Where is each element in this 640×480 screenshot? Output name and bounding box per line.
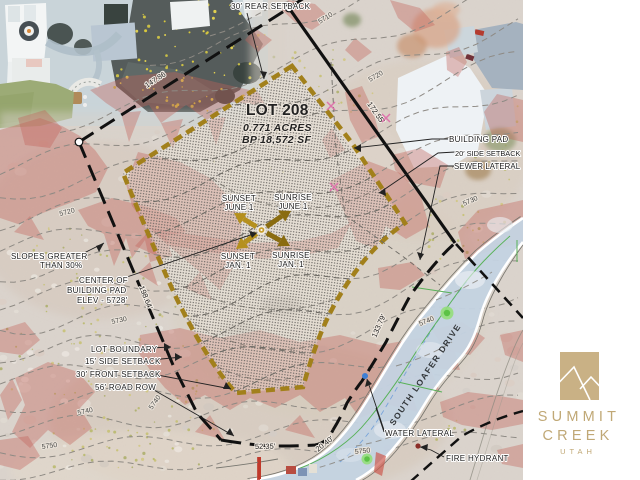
svg-text:CREEK: CREEK <box>543 428 614 444</box>
svg-text:56′ ROAD ROW: 56′ ROAD ROW <box>95 383 156 392</box>
svg-text:SUNRISE: SUNRISE <box>272 251 310 260</box>
svg-text:SEWER LATERAL: SEWER LATERAL <box>454 162 521 171</box>
svg-text:SUMMIT: SUMMIT <box>538 409 620 425</box>
svg-text:BP 18,572 SF: BP 18,572 SF <box>242 134 311 146</box>
svg-text:SUNRISE: SUNRISE <box>274 193 312 202</box>
svg-text:JUNE 1: JUNE 1 <box>278 202 308 211</box>
svg-text:LOT 208: LOT 208 <box>246 102 309 119</box>
svg-text:JAN. 1: JAN. 1 <box>225 261 251 270</box>
svg-text:SUNSET: SUNSET <box>222 194 256 203</box>
svg-text:20′ SIDE SETBACK: 20′ SIDE SETBACK <box>455 149 521 158</box>
svg-text:CENTER OF: CENTER OF <box>79 276 128 285</box>
svg-text:15′ SIDE SETBACK: 15′ SIDE SETBACK <box>85 357 161 366</box>
svg-text:JAN. 1: JAN. 1 <box>278 260 304 269</box>
svg-text:THAN 30%: THAN 30% <box>40 261 82 270</box>
svg-text:UTAH: UTAH <box>560 447 596 456</box>
svg-text:52.35′: 52.35′ <box>255 442 276 451</box>
svg-text:30′ FRONT SETBACK: 30′ FRONT SETBACK <box>76 370 161 379</box>
svg-text:30′ REAR SETBACK: 30′ REAR SETBACK <box>231 2 311 11</box>
svg-text:SUNSET: SUNSET <box>221 252 255 261</box>
svg-text:SLOPES GREATER: SLOPES GREATER <box>11 252 88 261</box>
svg-text:WATER LATERAL: WATER LATERAL <box>385 429 454 438</box>
svg-text:LOT BOUNDARY: LOT BOUNDARY <box>91 345 158 354</box>
svg-text:ELEV - 5728′: ELEV - 5728′ <box>77 296 128 305</box>
svg-text:0.771 ACRES: 0.771 ACRES <box>243 122 312 134</box>
svg-text:JUNE 1: JUNE 1 <box>224 203 254 212</box>
svg-text:BUILDING PAD: BUILDING PAD <box>67 286 126 295</box>
svg-text:BUILDING PAD: BUILDING PAD <box>449 135 508 144</box>
svg-text:FIRE HYDRANT: FIRE HYDRANT <box>446 454 509 463</box>
